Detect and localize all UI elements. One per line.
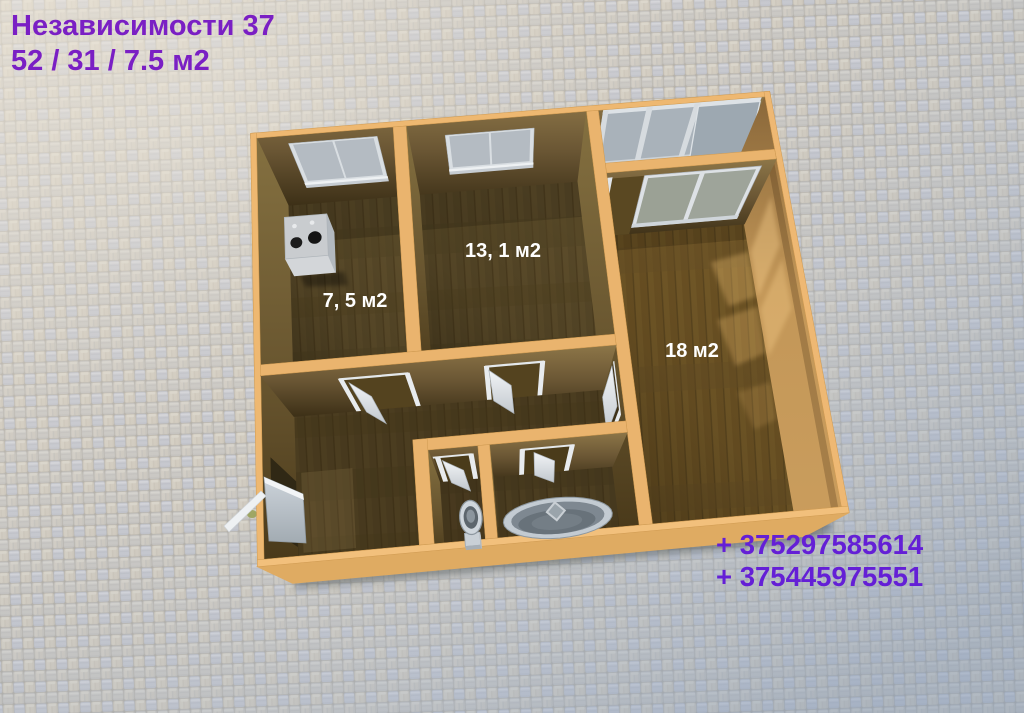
svg-text:13, 1 м2: 13, 1 м2 xyxy=(465,240,541,262)
svg-text:18 м2: 18 м2 xyxy=(665,340,719,362)
svg-text:7, 5 м2: 7, 5 м2 xyxy=(323,290,388,312)
